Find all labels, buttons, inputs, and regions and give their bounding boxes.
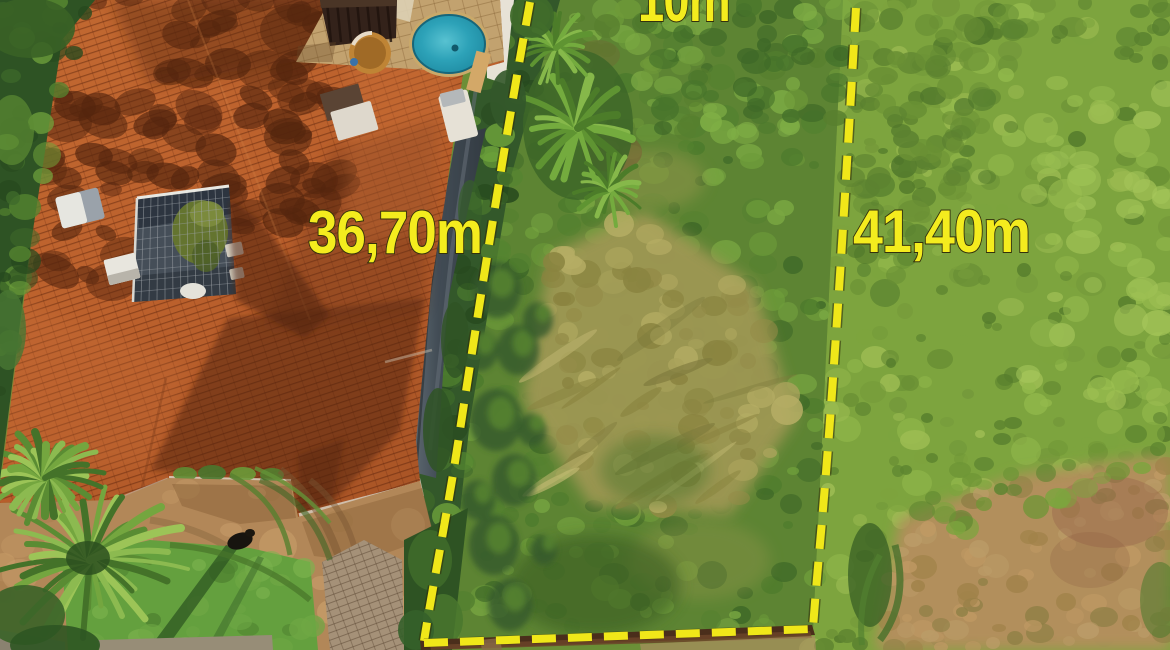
svg-text:41,40m: 41,40m (853, 198, 1030, 265)
svg-text:36,70m: 36,70m (308, 199, 482, 266)
svg-text:10m: 10m (638, 0, 730, 35)
